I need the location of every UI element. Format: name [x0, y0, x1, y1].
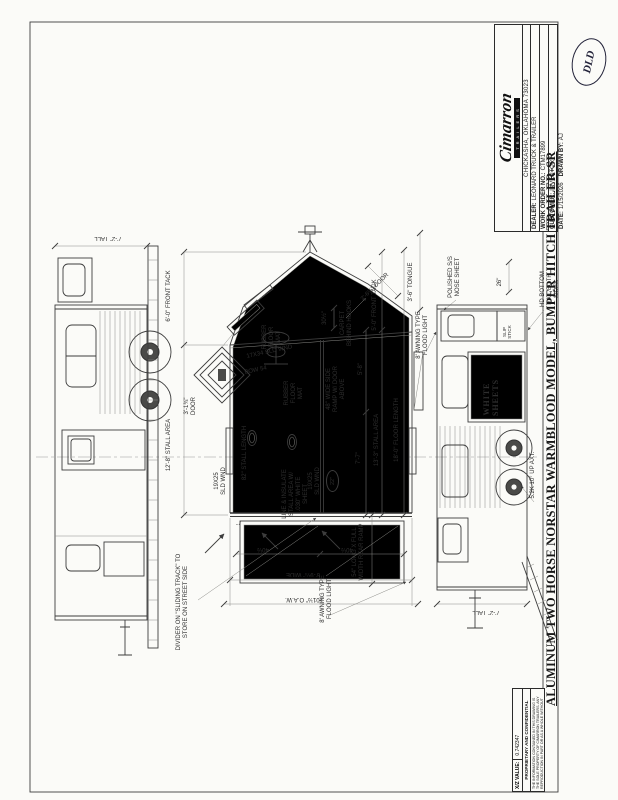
- cimarron-logo-sub: TRAILERS: [514, 98, 520, 158]
- drawing-sheet: 6'-0" FRONT TACK 12'-8" STALL AREA 3'-6"…: [0, 0, 618, 800]
- note-axles: 5.2K 10° UP AXT.: [530, 440, 537, 510]
- date-row: DATE: 1/15/2026 DRAWN BY: AJ: [557, 25, 566, 231]
- dim-oaw: 101½" O.A.W.: [256, 595, 352, 602]
- dim-floor-length: 18'-0" FLOOR LENGTH: [394, 350, 401, 510]
- xz-row: X/Z VALUE: 0.742347: [513, 689, 522, 791]
- dim-5-8: 5'-8": [358, 334, 365, 404]
- address: CHICKASHA, OKLAHOMA 73023: [524, 79, 530, 177]
- note-polished-nose: POLISHED S/S NOSE SHEET: [448, 254, 462, 300]
- dim-26: 26": [497, 268, 504, 296]
- note-divider-track: DIVIDER ON "SLIDING TRACK" TO STORE ON S…: [176, 552, 190, 652]
- dim-22-oval: 22": [326, 470, 339, 492]
- dim-tall-street: 7'-2" TALL: [70, 234, 146, 241]
- note-flood-light-curb: 8' AWNING TYPE FLOOD LIGHT: [416, 310, 430, 360]
- note-line-insulate: LINE & INSULATE STALL AREA W/ .030" WHIT…: [282, 466, 310, 522]
- dim-escape-door: 3'-1¾" DOOR: [184, 394, 198, 418]
- dim-stall-length: 82" STALL LENGTH: [242, 408, 249, 498]
- dim-30: 30½": [322, 306, 329, 330]
- dim-40-a: 40½: [246, 545, 280, 552]
- logo: Cimarron TRAILERS: [495, 25, 522, 231]
- cimarron-logo-text: Cimarron: [497, 92, 514, 164]
- dim-22: 22": [330, 477, 336, 485]
- dim-7-7: 7'-7": [356, 418, 363, 498]
- note-sld-wnd-19-right: 19X25 SLD WND: [308, 466, 322, 496]
- proprietary-title: PROPRIETARY AND CONFIDENTIAL: [522, 689, 530, 791]
- approval-initials: DLD: [581, 50, 597, 75]
- dealer-label: DEALER:: [532, 202, 538, 229]
- dim-40-b: 40½: [330, 545, 364, 552]
- note-side-ramp: 48" WIDE SIDE RAMP W/ DOOR ABOVE: [326, 366, 347, 412]
- dealer-row: DEALER: LEONARD TRUCK & TRAILER: [530, 25, 539, 231]
- street-side-elevation: [52, 243, 171, 655]
- drawn-by-value: AJ: [559, 133, 565, 140]
- dim-front-tack-left: 6'-0" FRONT TACK: [166, 258, 173, 334]
- xz-label: X/Z VALUE:: [513, 759, 522, 791]
- drawn-by-label: DRAWN BY:: [559, 142, 565, 176]
- dim-rear-ramp: 54" LONG X FULL WIDTH REAR RAMP: [352, 518, 366, 586]
- proprietary-block: X/Z VALUE: 0.742347 PROPRIETARY AND CONF…: [512, 688, 545, 792]
- date-value: 1/15/2026: [559, 182, 565, 209]
- date-label: DATE:: [559, 211, 565, 229]
- note-sld-wnd-19-left: 19X25 SLD WND: [214, 466, 228, 496]
- dim-width: 6'-9¼" WIDE: [260, 570, 346, 577]
- note-white-sheets: WHITE SHEETS: [482, 382, 500, 416]
- floor-plan: [194, 226, 423, 583]
- note-slip-stick: SLIP STICK: [502, 322, 513, 342]
- dim-stall-area-left: 12'-8" STALL AREA: [166, 390, 173, 500]
- drawing-title: ALUMINUM TWO HORSE NORSTAR WARMBLOOD MOD…: [544, 216, 558, 706]
- dim-stall-area-right: 13'-3" STALL AREA: [374, 390, 381, 490]
- proprietary-text: THE INFORMATION CONTAINED IN THIS DRAWIN…: [530, 689, 545, 791]
- dim-7: 7": [230, 518, 248, 525]
- dim-tall-curb: 7'-2" TALL: [444, 608, 528, 615]
- curb-side-elevation: [437, 305, 557, 646]
- address-row: CHICKASHA, OKLAHOMA 73023: [522, 25, 530, 231]
- note-carpet-hooks: CARPET BEHIND HOOKS: [340, 300, 354, 346]
- note-rubber-floor-mat-2: RUBBER FLOOR MAT: [284, 378, 305, 408]
- xz-value: 0.742347: [515, 735, 521, 756]
- dealer-value: LEONARD TRUCK & TRAILER: [532, 117, 538, 201]
- dim-tongue: 3'-6" TONGUE: [408, 252, 415, 312]
